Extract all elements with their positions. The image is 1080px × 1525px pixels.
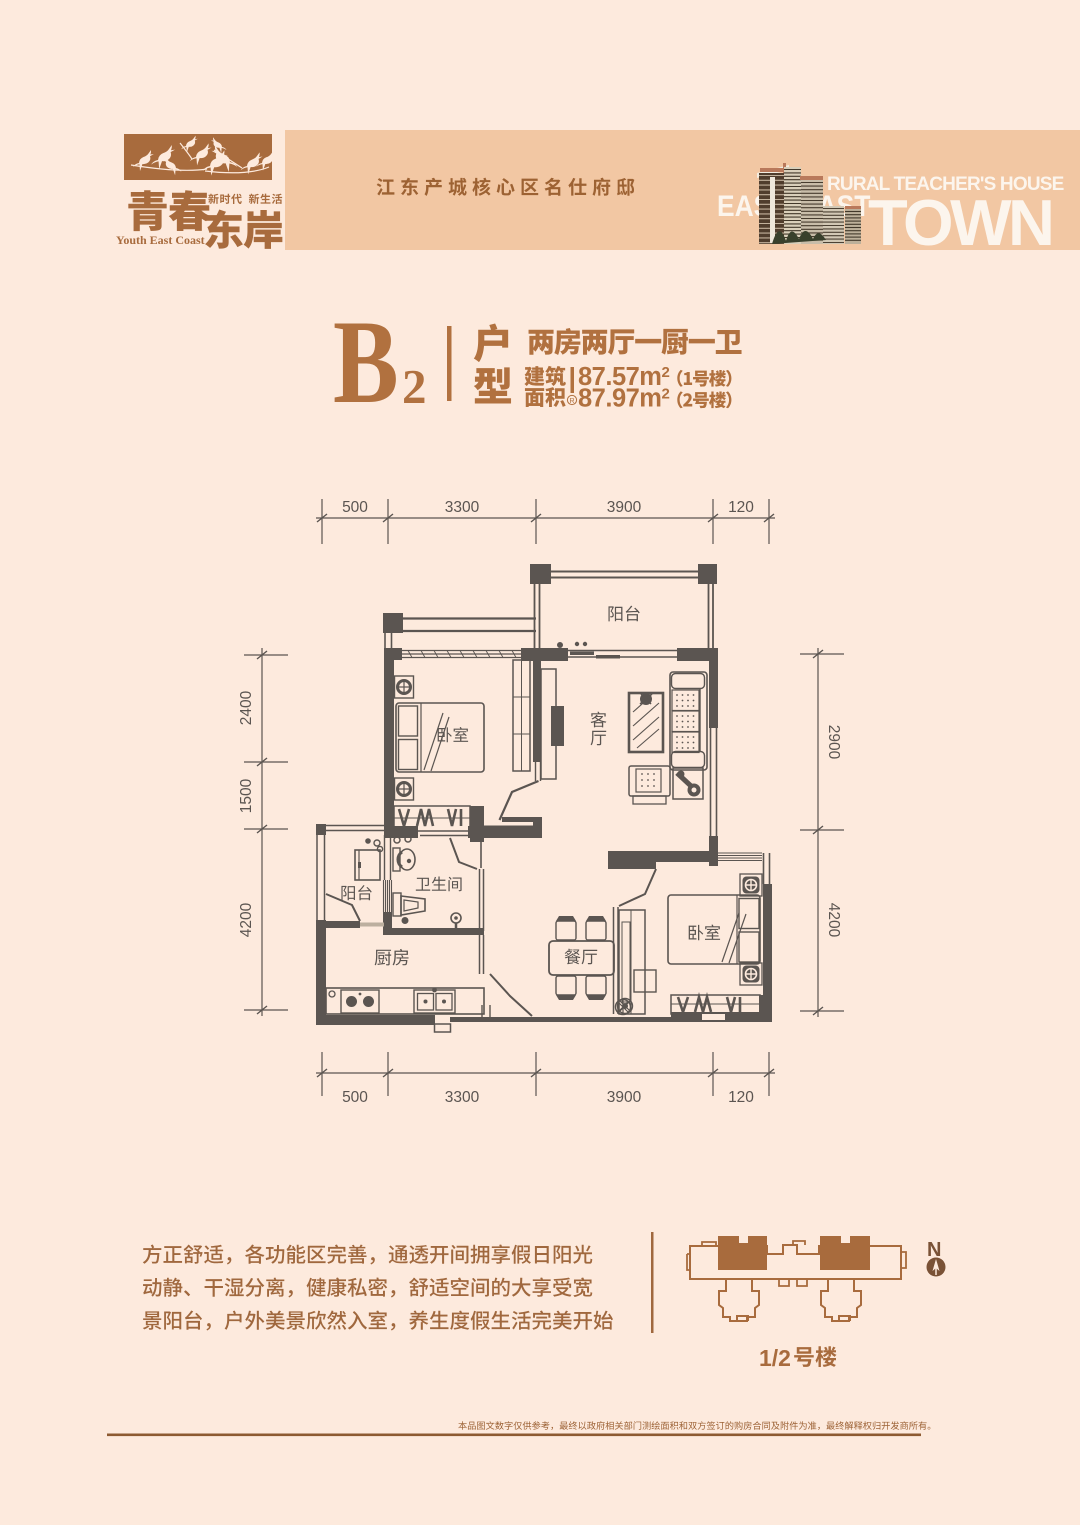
svg-text:4200: 4200 (238, 902, 255, 937)
svg-text:2400: 2400 (238, 690, 255, 725)
svg-text:2900: 2900 (825, 725, 842, 760)
svg-text:Youth East Coast: Youth East Coast (116, 233, 205, 247)
svg-text:120: 120 (728, 499, 754, 516)
svg-text:3900: 3900 (607, 499, 642, 516)
svg-text:3300: 3300 (445, 1089, 480, 1106)
svg-text:1/2: 1/2 (759, 1345, 791, 1371)
svg-text:R: R (569, 398, 574, 405)
svg-text:3900: 3900 (607, 1089, 642, 1106)
svg-text:2: 2 (402, 359, 427, 414)
svg-text:3300: 3300 (445, 499, 480, 516)
svg-text:1500: 1500 (238, 778, 255, 813)
svg-text:TOWN: TOWN (868, 186, 1051, 259)
svg-text:500: 500 (342, 1089, 368, 1106)
svg-text:87.97m2: 87.97m2 (578, 385, 670, 413)
svg-text:120: 120 (728, 1089, 754, 1106)
svg-text:4200: 4200 (825, 903, 842, 938)
svg-text:B: B (333, 295, 399, 428)
svg-text:500: 500 (342, 499, 368, 516)
